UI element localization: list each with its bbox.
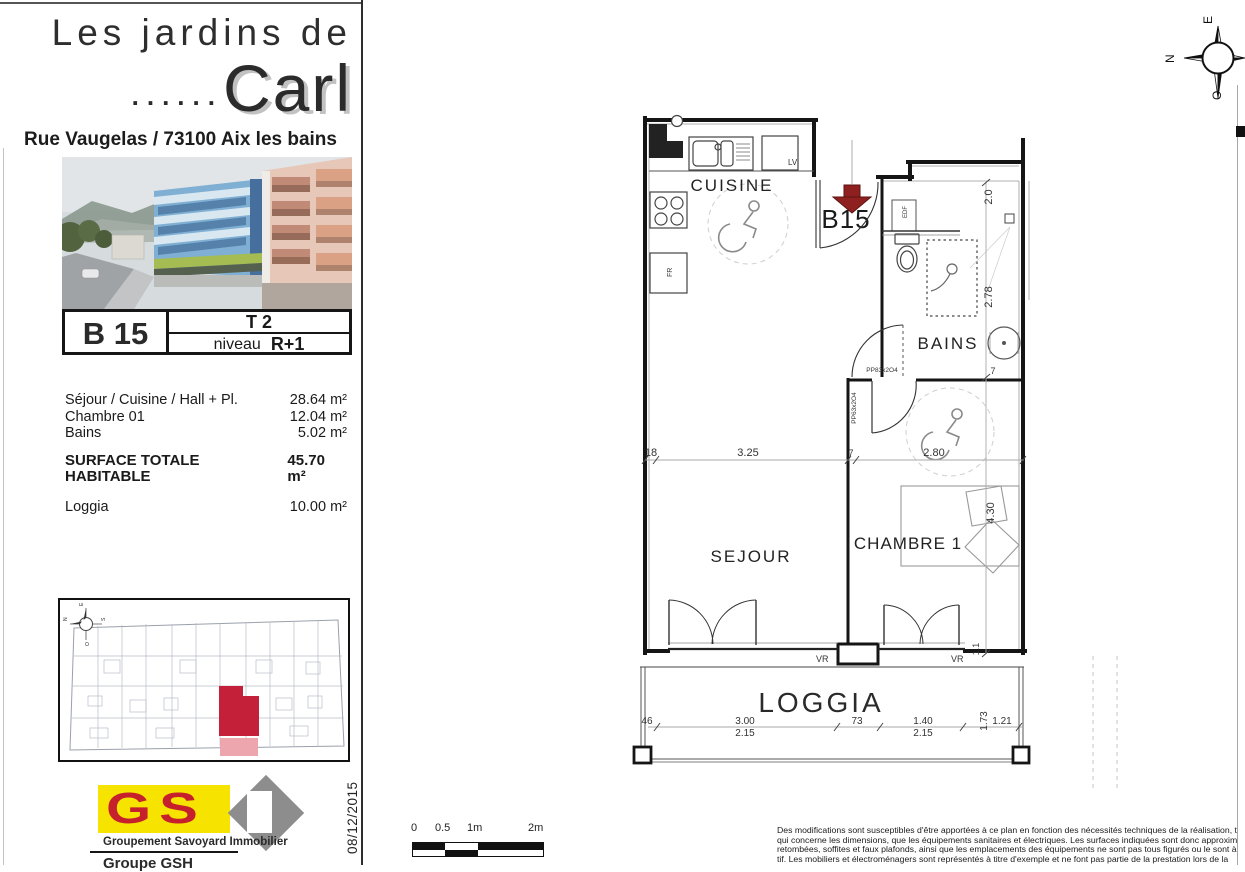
surface-value: 5.02 m² — [298, 425, 347, 442]
fridge: FR — [650, 253, 687, 293]
entrance-label: B15 — [821, 204, 870, 234]
vent-box-icon — [1005, 214, 1014, 223]
interior-walls — [848, 177, 1023, 646]
surface-value: 28.64 m² — [290, 392, 347, 409]
unit-code: B 15 — [65, 312, 169, 355]
room-label-living: SEJOUR — [711, 547, 792, 566]
scale-label: 2m — [528, 822, 543, 834]
unit-info-table: B 15 T 2 niveauR+1 — [62, 309, 352, 355]
building-photo — [62, 157, 352, 309]
svg-text:7: 7 — [848, 448, 853, 458]
washbasin-icon — [988, 327, 1020, 359]
wheelchair-icon — [906, 388, 994, 476]
svg-text:2.15: 2.15 — [913, 728, 933, 739]
scanned-floor-plan-sheet: { "header": { "title_top": "Les jardins … — [0, 0, 1245, 865]
surface-label: Séjour / Cuisine / Hall + Pl. — [65, 392, 238, 409]
unit-level: niveauR+1 — [169, 334, 349, 355]
room-label-bath: BAINS — [917, 334, 978, 353]
unit-level-label: niveau — [214, 336, 261, 354]
svg-text:18: 18 — [645, 447, 657, 459]
bed-icon — [901, 486, 1019, 573]
surface-total-row: SURFACE TOTALE HABITABLE45.70 m² — [65, 453, 347, 486]
svg-text:3.25: 3.25 — [737, 447, 758, 459]
room-label-kitchen: CUISINE — [691, 176, 774, 195]
title-carl: Carl — [223, 51, 352, 125]
compass-o: O — [1210, 91, 1224, 100]
scale-bar: 0 0.5 1m 2m — [405, 822, 550, 862]
disclaimer-line: tif. Les mobiliers et électroménagers so… — [777, 855, 1237, 865]
toilet-icon — [895, 234, 919, 272]
svg-text:PP63x2O4: PP63x2O4 — [851, 392, 858, 424]
scale-bar-stripes — [412, 842, 544, 857]
surface-loggia-value: 10.00 m² — [290, 499, 347, 516]
svg-text:1.21: 1.21 — [992, 716, 1012, 727]
title-dots: ...... — [132, 81, 223, 111]
gsi-group-line: Groupe GSH — [103, 855, 193, 872]
vent-icon — [672, 116, 683, 127]
project-title-main: ......Carl — [0, 50, 352, 126]
floor-plan: LV FR B15 EDF — [620, 100, 1245, 795]
svg-text:PP83x2O4: PP83x2O4 — [866, 367, 898, 374]
surface-table: Séjour / Cuisine / Hall + Pl.28.64 m² Ch… — [65, 392, 347, 515]
scale-label: 0 — [411, 822, 417, 834]
bedroom-window — [878, 605, 965, 649]
living-window — [668, 600, 838, 649]
dishwasher: LV — [762, 136, 798, 170]
surface-label: Chambre 01 — [65, 409, 145, 426]
svg-text:2.78: 2.78 — [983, 286, 995, 307]
svg-text:2.15: 2.15 — [735, 728, 755, 739]
svg-text:1.73: 1.73 — [979, 711, 990, 731]
page-top-border — [0, 2, 361, 4]
svg-text:E: E — [79, 602, 85, 606]
svg-text:73: 73 — [851, 716, 863, 727]
svg-text:EDF: EDF — [903, 206, 909, 218]
gsi-letters: GS — [106, 784, 206, 834]
siteplan-compass-icon: E N S O — [63, 602, 107, 646]
room-label-loggia: LOGGIA — [758, 687, 883, 718]
duct-wall — [649, 124, 683, 158]
surface-row: Séjour / Cuisine / Hall + Pl.28.64 m² — [65, 392, 347, 409]
svg-text:O: O — [85, 642, 91, 646]
gsi-underline — [90, 851, 238, 853]
scale-label: 0.5 — [435, 822, 450, 834]
surface-value: 12.04 m² — [290, 409, 347, 426]
project-title-top: Les jardins de — [0, 12, 352, 54]
shutter-tag: VR — [951, 654, 964, 664]
gsi-caption: Groupement Savoyard Immobilier — [103, 836, 288, 848]
bath-door-swing: PP83x2O4 — [852, 325, 903, 377]
surface-row: Chambre 0112.04 m² — [65, 409, 347, 426]
surface-loggia-row: Loggia10.00 m² — [65, 499, 347, 516]
svg-text:46: 46 — [641, 716, 653, 727]
sidebar-divider — [361, 0, 363, 865]
unit-type: T 2 — [169, 312, 349, 334]
surface-label: Bains — [65, 425, 101, 442]
loggia-post — [1013, 747, 1029, 763]
svg-text:3.00: 3.00 — [735, 716, 755, 727]
kitchen-sink-icon — [689, 137, 753, 170]
svg-text:1.1: 1.1 — [971, 643, 981, 656]
gsi-logo: GS — [98, 785, 230, 833]
surface-loggia-label: Loggia — [65, 499, 109, 516]
window-pillar — [838, 644, 878, 664]
room-label-bedroom: CHAMBRE 1 — [854, 534, 962, 553]
svg-text:FR: FR — [667, 268, 674, 277]
svg-text:7: 7 — [990, 366, 995, 376]
scale-label: 1m — [467, 822, 482, 834]
cooktop-icon — [650, 192, 687, 228]
svg-text:S: S — [101, 617, 107, 621]
site-plan-thumbnail: E N S O — [58, 598, 350, 762]
svg-text:LV: LV — [788, 158, 798, 167]
svg-text:4.30: 4.30 — [985, 502, 997, 523]
loggia-post — [634, 747, 651, 763]
compass-n: N — [1163, 54, 1177, 63]
page-left-border — [3, 148, 4, 865]
surface-row: Bains5.02 m² — [65, 425, 347, 442]
project-address: Rue Vaugelas / 73100 Aix les bains — [0, 129, 361, 151]
compass-e: E — [1201, 16, 1215, 24]
disclaimer-text: Des modifications sont susceptibles d'êt… — [777, 826, 1237, 864]
svg-text:1.40: 1.40 — [913, 716, 933, 727]
unit-level-value: R+1 — [271, 334, 305, 355]
surface-total-value: 45.70 m² — [287, 453, 347, 486]
wheelchair-icon — [708, 184, 788, 264]
svg-text:2.0: 2.0 — [983, 189, 995, 204]
highlighted-loggia — [220, 738, 258, 756]
highlighted-unit — [219, 686, 259, 736]
shutter-tag: VR — [816, 654, 829, 664]
surface-total-label: SURFACE TOTALE HABITABLE — [65, 453, 287, 486]
gsi-i-bar-icon — [247, 791, 272, 833]
dimension-lines — [645, 182, 1024, 727]
dimension-labels: 18 3.25 7 2.80 2.0 2.78 7 4.30 1.1 — [645, 189, 997, 655]
plan-date: 08/12/2015 — [345, 779, 360, 854]
svg-text:2.80: 2.80 — [923, 447, 944, 459]
edf-closet: EDF — [892, 200, 916, 231]
shower-icon — [927, 240, 977, 316]
svg-text:N: N — [63, 617, 69, 621]
